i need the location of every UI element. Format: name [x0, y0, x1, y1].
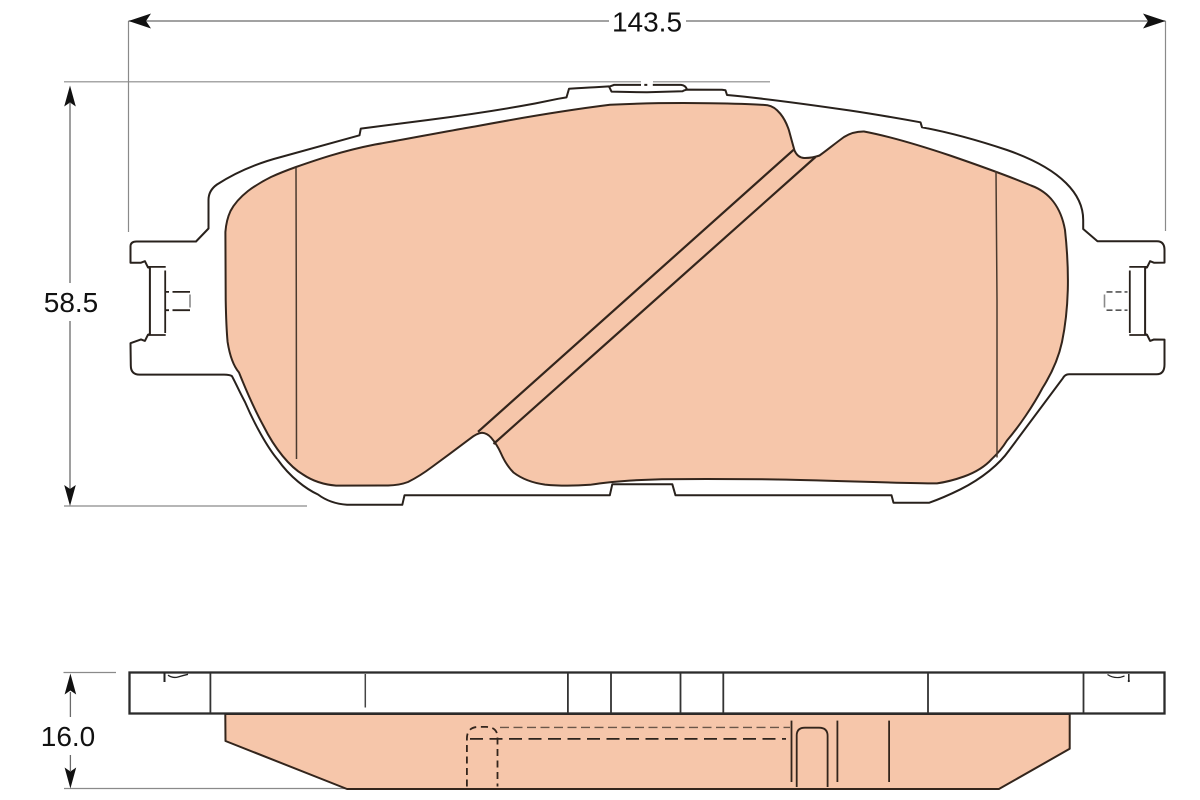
svg-text:16.0: 16.0 [41, 721, 96, 752]
svg-text:143.5: 143.5 [612, 7, 682, 38]
svg-text:58.5: 58.5 [44, 287, 99, 318]
